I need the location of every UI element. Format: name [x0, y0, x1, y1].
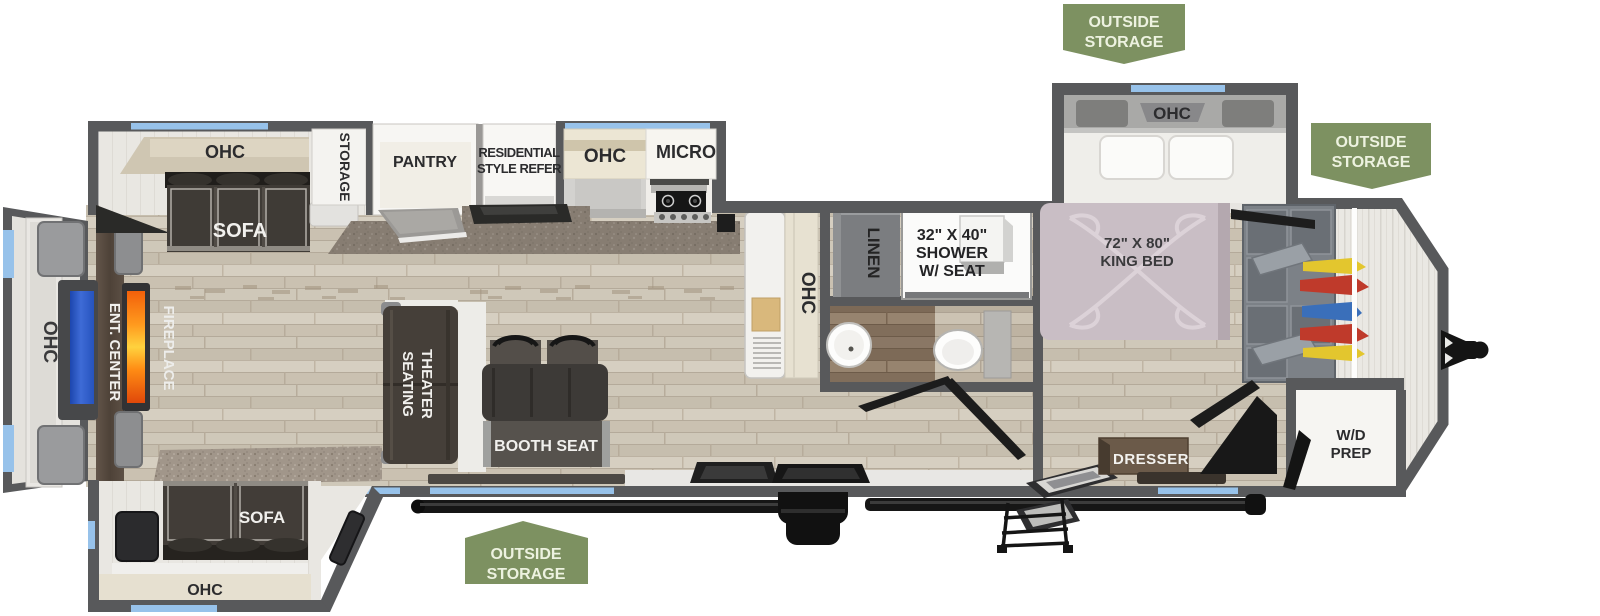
svg-text:OUTSIDE: OUTSIDE	[1335, 134, 1406, 151]
svg-text:OHC: OHC	[205, 142, 245, 162]
svg-text:72" X 80": 72" X 80"	[1104, 235, 1170, 252]
svg-text:KING BED: KING BED	[1100, 253, 1174, 270]
svg-text:STYLE REFER: STYLE REFER	[477, 161, 562, 176]
svg-text:STORAGE: STORAGE	[1085, 34, 1164, 51]
svg-text:OHC: OHC	[187, 582, 223, 599]
svg-text:DRESSER: DRESSER	[1113, 451, 1189, 468]
svg-text:W/D: W/D	[1336, 427, 1365, 444]
svg-text:THEATER: THEATER	[418, 349, 435, 419]
svg-text:OUTSIDE: OUTSIDE	[1088, 14, 1159, 31]
svg-text:SEATING: SEATING	[399, 351, 416, 417]
svg-text:32" X 40": 32" X 40"	[917, 227, 987, 244]
svg-text:PREP: PREP	[1331, 445, 1372, 462]
svg-text:OHC: OHC	[797, 272, 818, 315]
svg-text:SHOWER: SHOWER	[916, 245, 988, 262]
svg-text:STORAGE: STORAGE	[1332, 154, 1411, 171]
svg-text:MICRO: MICRO	[656, 142, 716, 162]
svg-text:OUTSIDE: OUTSIDE	[490, 546, 561, 563]
svg-text:SOFA: SOFA	[239, 508, 285, 527]
svg-text:OHC: OHC	[584, 146, 627, 167]
svg-text:LINEN: LINEN	[864, 228, 883, 279]
svg-text:FIREPLACE: FIREPLACE	[160, 305, 177, 390]
svg-text:ENT. CENTER: ENT. CENTER	[106, 303, 123, 402]
svg-text:PANTRY: PANTRY	[393, 154, 457, 171]
svg-text:STORAGE: STORAGE	[337, 133, 353, 202]
svg-text:BOOTH SEAT: BOOTH SEAT	[494, 438, 598, 455]
svg-text:STORAGE: STORAGE	[487, 566, 566, 583]
svg-text:SOFA: SOFA	[213, 220, 267, 242]
svg-text:OHC: OHC	[39, 321, 60, 364]
svg-text:RESIDENTIAL: RESIDENTIAL	[478, 145, 560, 160]
svg-text:W/ SEAT: W/ SEAT	[919, 263, 985, 280]
svg-text:OHC: OHC	[1153, 104, 1191, 123]
